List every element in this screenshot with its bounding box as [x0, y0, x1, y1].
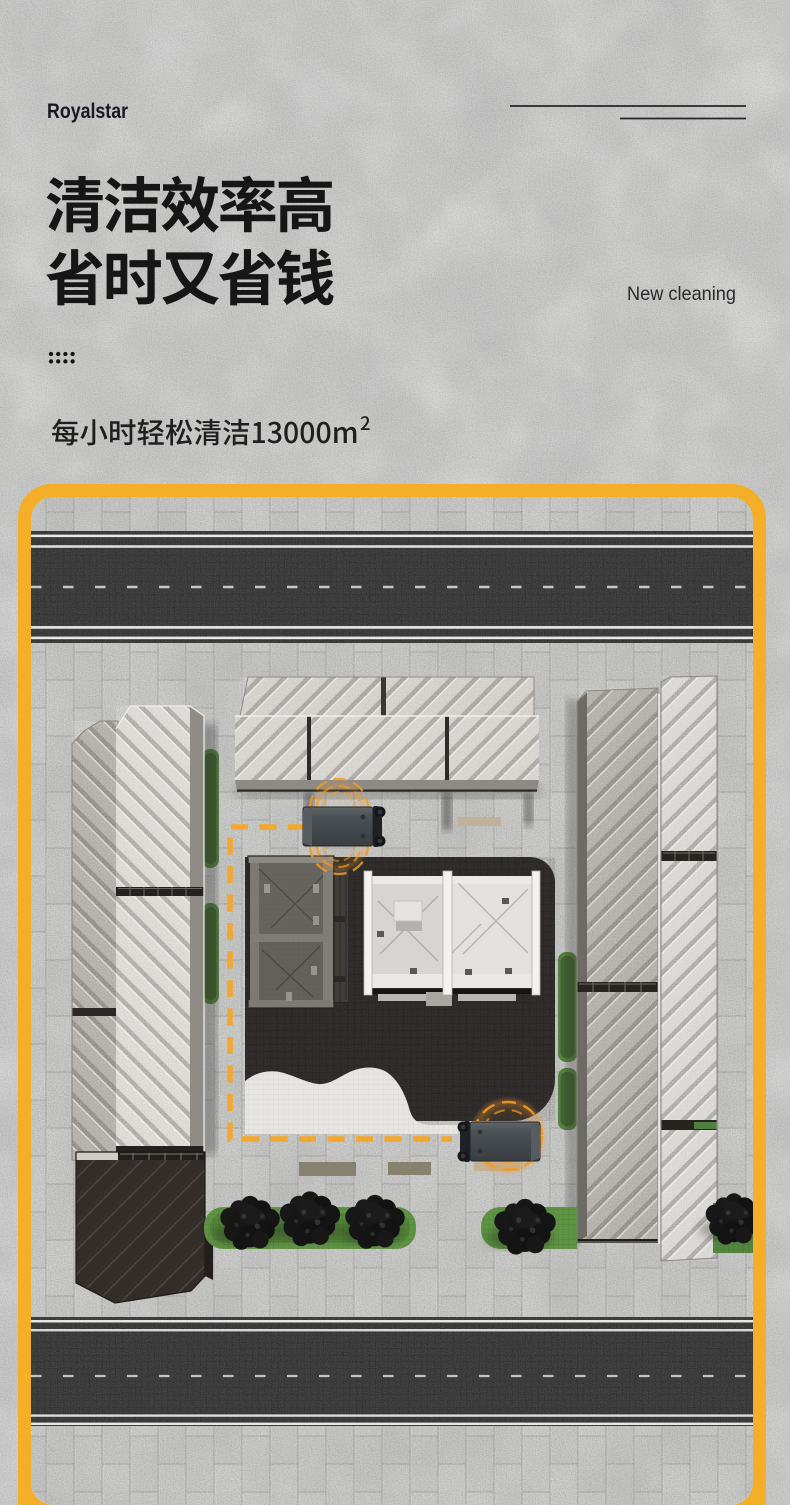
- svg-text:Royalstar: Royalstar: [47, 100, 128, 123]
- svg-text:New cleaning: New cleaning: [627, 283, 736, 305]
